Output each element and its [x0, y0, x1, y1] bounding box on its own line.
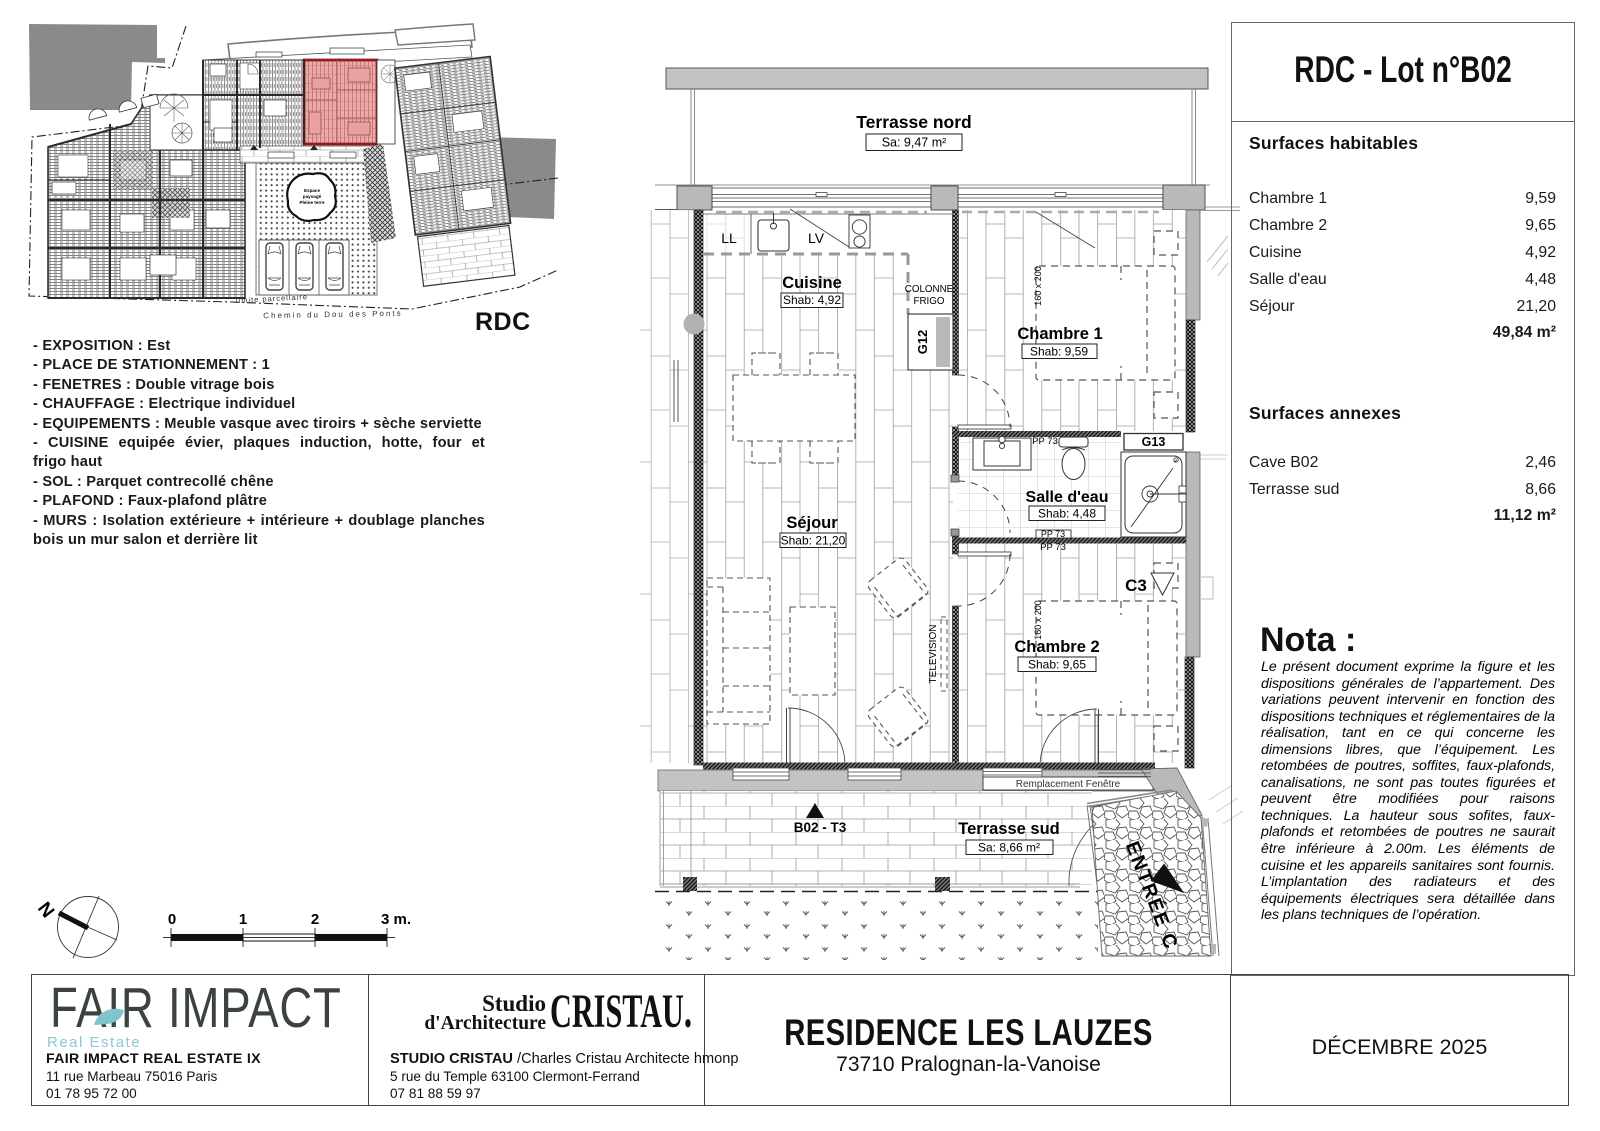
svg-text:Cuisine: Cuisine [782, 274, 842, 292]
svg-text:TELEVISION: TELEVISION [928, 625, 939, 684]
svg-text:1: 1 [239, 911, 247, 928]
svg-text:C3: C3 [1125, 576, 1147, 595]
svg-text:FRIGO: FRIGO [913, 296, 944, 307]
svg-text:0: 0 [168, 911, 176, 928]
svg-text:Salle d'eau: Salle d'eau [1026, 489, 1109, 506]
svg-text:160 x 200: 160 x 200 [1033, 600, 1043, 640]
svg-text:Séjour: Séjour [786, 514, 838, 532]
svg-text:Terrasse nord: Terrasse nord [856, 112, 971, 132]
svg-text:N: N [33, 898, 58, 922]
svg-text:PP 73: PP 73 [1032, 436, 1058, 447]
svg-text:Sa: 9,47 m²: Sa: 9,47 m² [882, 136, 947, 150]
svg-text:160 x 200: 160 x 200 [1033, 266, 1043, 306]
svg-text:B02 - T3: B02 - T3 [794, 820, 847, 835]
svg-text:PP 73: PP 73 [1040, 542, 1066, 553]
svg-text:Chemin du Dou des Ponts: Chemin du Dou des Ponts [263, 309, 403, 320]
svg-text:Chambre 2: Chambre 2 [1014, 638, 1099, 656]
svg-text:2: 2 [311, 911, 319, 928]
svg-text:PP 73: PP 73 [1041, 529, 1065, 539]
svg-text:COLONNE: COLONNE [905, 284, 954, 295]
svg-text:Shab: 4,92: Shab: 4,92 [783, 293, 841, 307]
svg-text:Pleine terre: Pleine terre [299, 200, 324, 205]
svg-text:LL: LL [721, 230, 737, 246]
svg-text:G12: G12 [915, 330, 930, 355]
svg-text:G13: G13 [1142, 435, 1166, 449]
svg-text:Terrasse sud: Terrasse sud [958, 820, 1060, 838]
svg-text:3 m.: 3 m. [381, 911, 411, 928]
svg-text:paysagé: paysagé [303, 194, 322, 199]
svg-text:Shab: 9,59: Shab: 9,59 [1030, 345, 1088, 359]
svg-text:Shab: 21,20: Shab: 21,20 [781, 534, 846, 548]
svg-text:Espace: Espace [304, 188, 321, 193]
svg-text:Shab: 9,65: Shab: 9,65 [1028, 658, 1086, 672]
svg-text:Remplacement Fenêtre: Remplacement Fenêtre [1016, 779, 1121, 790]
svg-text:LV: LV [808, 230, 825, 246]
svg-text:limite parcellaire: limite parcellaire [236, 292, 309, 305]
svg-text:Chambre 1: Chambre 1 [1017, 325, 1102, 343]
svg-text:Shab: 4,48: Shab: 4,48 [1038, 507, 1096, 521]
svg-text:Sa: 8,66 m²: Sa: 8,66 m² [978, 841, 1040, 855]
